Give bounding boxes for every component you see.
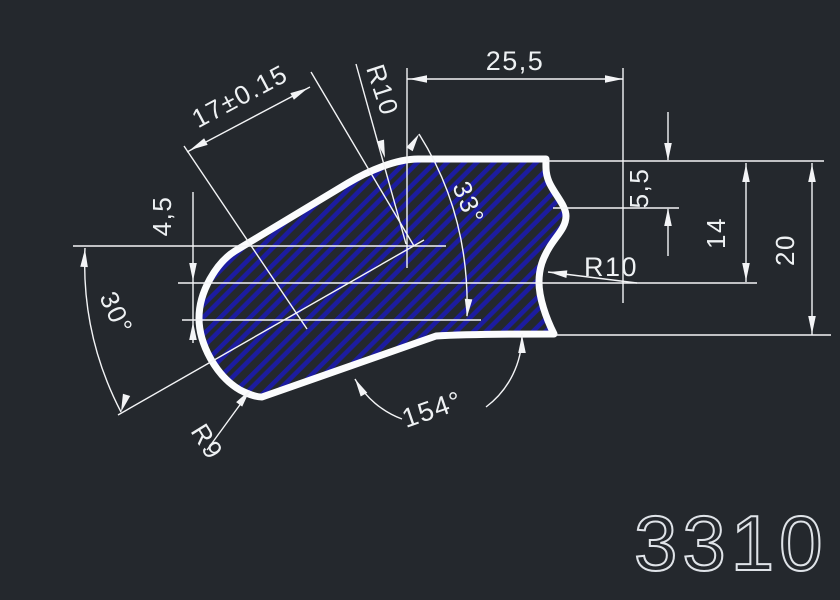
dim-label-length-17[interactable]: 17±0.15 <box>187 58 293 133</box>
arrow-5-5-upper <box>664 143 672 161</box>
arrow-154-left <box>352 377 368 396</box>
dim-label-height-14[interactable]: 14 <box>701 217 731 249</box>
dim-label-angle-154[interactable]: 154° <box>398 385 466 434</box>
arrow-154-right <box>518 335 526 353</box>
dim-arc-154-left[interactable] <box>355 379 402 419</box>
arrow-17-upper <box>290 85 309 100</box>
dim-label-radius-r9[interactable]: R9 <box>185 418 230 465</box>
arrow-30-upper <box>80 249 89 267</box>
arrow-14-upper <box>742 164 750 182</box>
dim-label-angle-30[interactable]: 30° <box>94 287 140 339</box>
arrow-5-5-lower <box>664 208 672 226</box>
arrow-4-5-upper <box>189 263 197 281</box>
drawing-canvas[interactable]: 25,517±0.15R1033°5,51420R104,530°R9154° … <box>0 0 840 600</box>
part-number-text[interactable]: 3310 <box>634 499 828 587</box>
arrow-20-upper <box>808 164 816 182</box>
arrow-20-lower <box>808 316 816 334</box>
dim-label-height-5-5[interactable]: 5,5 <box>624 168 654 209</box>
dim-label-height-20[interactable]: 20 <box>770 234 800 266</box>
part-section-outline[interactable] <box>199 159 566 397</box>
dim-arc-154-right[interactable] <box>486 334 522 407</box>
arrow-r10-top <box>377 140 389 159</box>
dim-label-width-25-5[interactable]: 25,5 <box>486 46 545 76</box>
dim-label-height-4-5[interactable]: 4,5 <box>147 196 177 237</box>
arrow-25-5-right <box>605 75 623 83</box>
arrow-4-5-lower <box>189 322 197 340</box>
dim-label-radius-top-r10[interactable]: R10 <box>360 61 405 120</box>
arrow-17-lower <box>188 138 207 153</box>
dim-label-radius-notch-r10[interactable]: R10 <box>584 252 638 282</box>
cad-drawing-viewport[interactable]: 25,517±0.15R1033°5,51420R104,530°R9154° … <box>0 0 840 600</box>
arrow-30-lower <box>117 394 130 413</box>
arrow-25-5-left <box>409 75 427 83</box>
arrow-14-lower <box>742 263 750 281</box>
